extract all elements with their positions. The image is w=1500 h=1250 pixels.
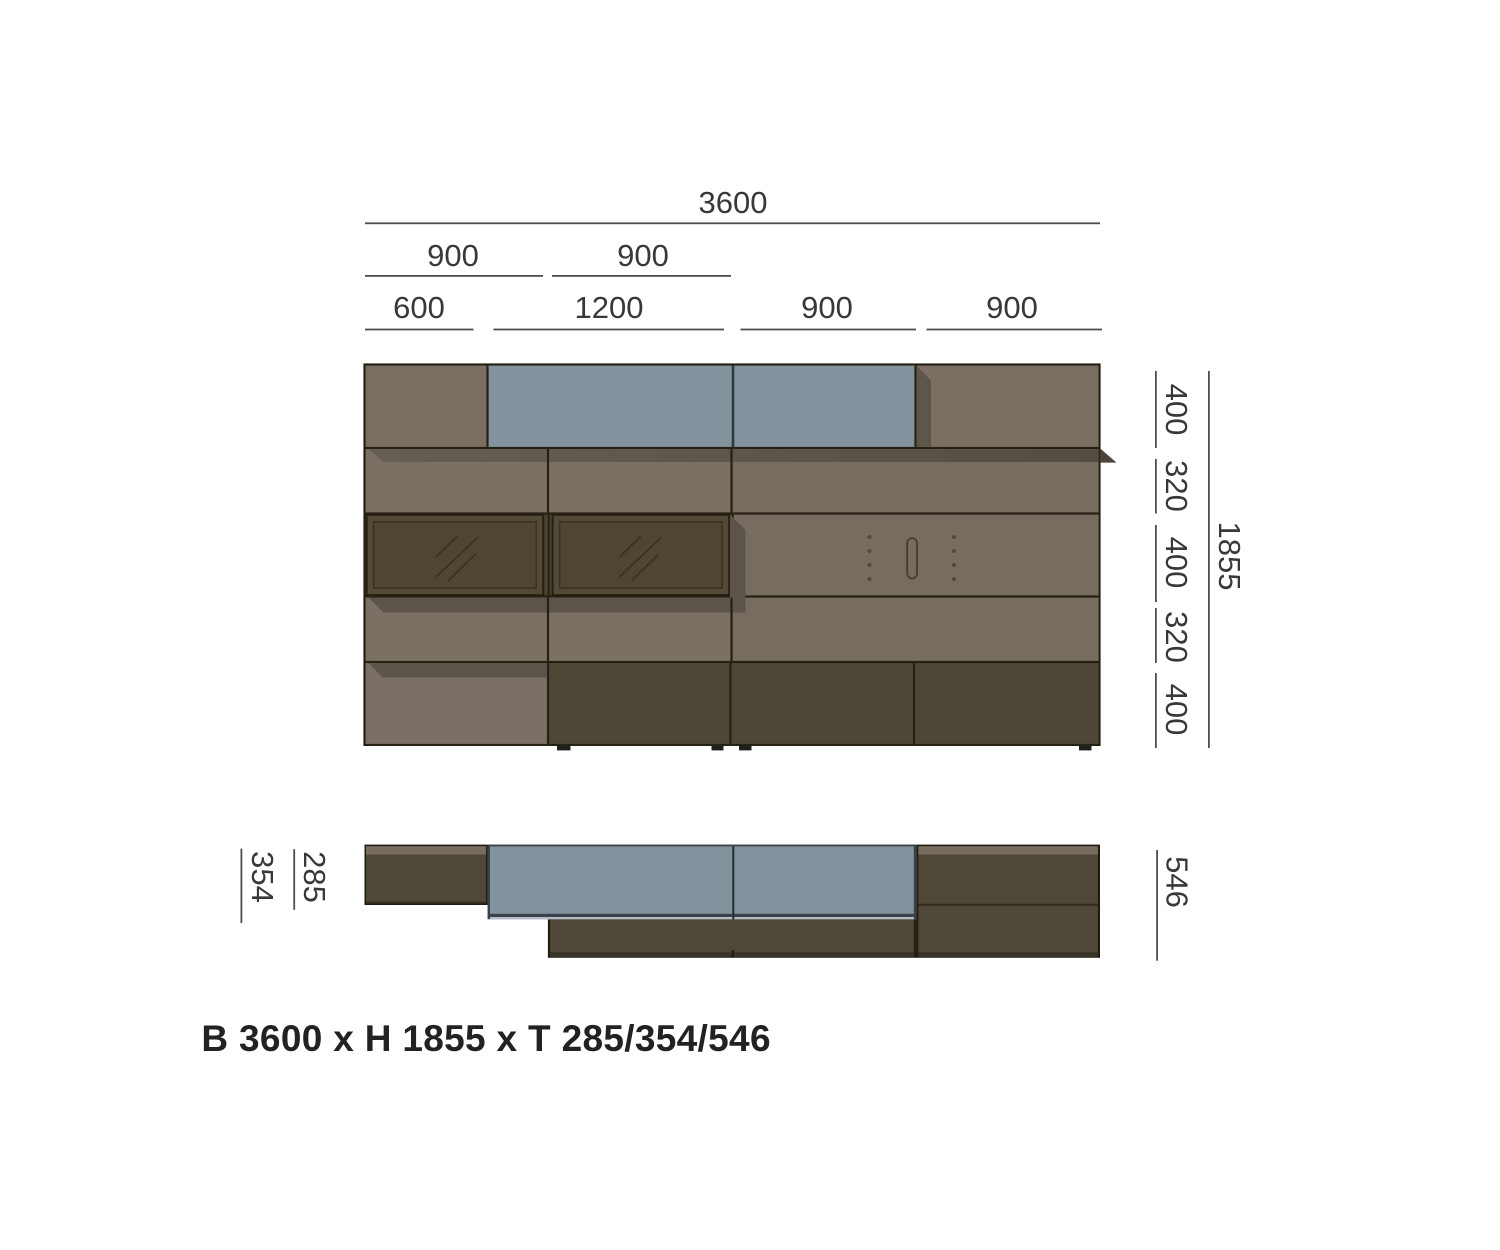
svg-text:900: 900 (427, 238, 479, 273)
svg-text:400: 400 (1159, 384, 1194, 436)
svg-text:546: 546 (1160, 856, 1195, 908)
svg-text:900: 900 (801, 290, 853, 325)
svg-text:400: 400 (1159, 684, 1194, 736)
svg-text:320: 320 (1159, 611, 1194, 663)
svg-text:320: 320 (1159, 460, 1194, 512)
svg-text:285: 285 (297, 851, 332, 903)
svg-text:600: 600 (393, 290, 445, 325)
svg-text:B 3600 x H 1855 x T 285/354/54: B 3600 x H 1855 x T 285/354/546 (201, 1018, 770, 1059)
svg-text:1200: 1200 (575, 290, 644, 325)
svg-text:400: 400 (1159, 537, 1194, 589)
svg-text:900: 900 (986, 290, 1038, 325)
svg-text:1855: 1855 (1212, 522, 1247, 591)
svg-text:354: 354 (245, 851, 280, 903)
svg-text:3600: 3600 (699, 185, 768, 220)
svg-text:900: 900 (617, 238, 669, 273)
